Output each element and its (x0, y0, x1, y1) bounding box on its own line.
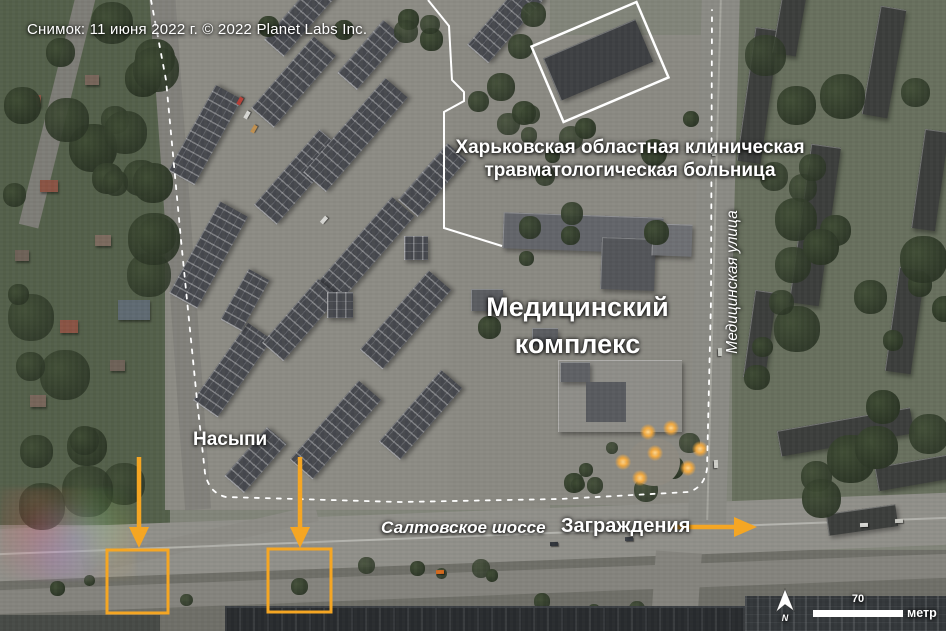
scale-bar-value: 70 (838, 593, 878, 605)
embankments-label: Насыпи (193, 429, 267, 451)
medical-complex-label: Медицинский комплекс (455, 289, 700, 362)
medical-complex-label-line1: Медицинский (486, 292, 668, 322)
hospital-label-line2: травматологическая больница (484, 160, 775, 181)
north-label: N (776, 613, 794, 623)
scale-bar-unit: метр (907, 606, 937, 620)
annotated-satellite-map: Снимок: 11 июня 2022 г. © 2022 Planet La… (0, 0, 946, 631)
hospital-label: Харьковская областная клиническая травма… (445, 136, 815, 182)
highway-label: Салтовское шоссе (381, 518, 546, 538)
image-credit: Снимок: 11 июня 2022 г. © 2022 Planet La… (27, 21, 367, 38)
barriers-label: Заграждения (561, 515, 690, 538)
hospital-label-line1: Харьковская областная клиническая (455, 137, 804, 158)
street-label: Медицинская улица (724, 202, 742, 362)
medical-complex-label-line2: комплекс (515, 329, 641, 359)
